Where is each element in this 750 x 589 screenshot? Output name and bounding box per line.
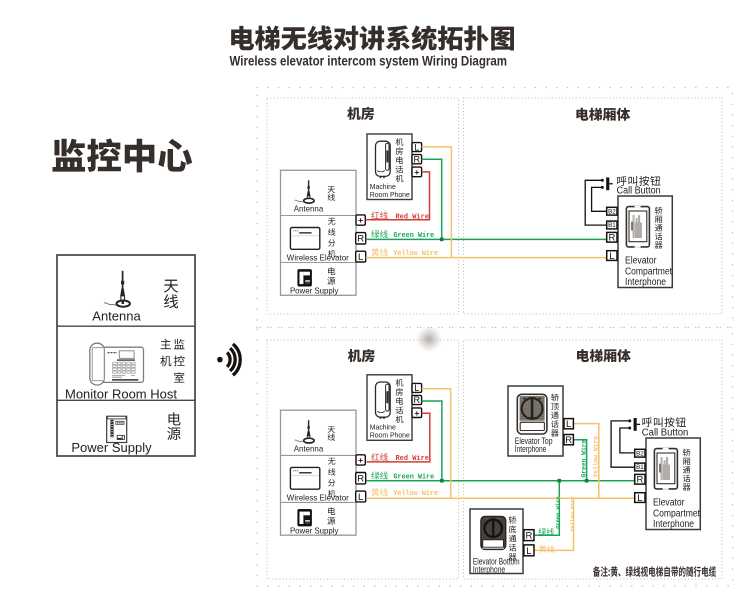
svg-text:L: L: [609, 251, 614, 262]
svg-text:L: L: [637, 493, 642, 504]
svg-text:Red Wire: Red Wire: [396, 455, 430, 463]
svg-text:+: +: [414, 408, 419, 418]
svg-text:+: +: [414, 167, 419, 177]
svg-text:Elevator: Elevator: [653, 498, 685, 509]
svg-text:Interphone: Interphone: [653, 519, 694, 530]
svg-text:Green Wire: Green Wire: [556, 496, 562, 528]
svg-text:Antenna: Antenna: [294, 443, 324, 453]
svg-text:B1: B1: [636, 464, 644, 471]
svg-text:Antenna: Antenna: [294, 204, 324, 214]
svg-text:Green Wire: Green Wire: [580, 439, 587, 477]
svg-text:Power Supply: Power Supply: [290, 525, 339, 535]
svg-text:Elevator: Elevator: [625, 256, 657, 267]
svg-text:L: L: [566, 419, 571, 430]
svg-text:Wireless Elevator: Wireless Elevator: [287, 253, 349, 263]
svg-text:+: +: [358, 455, 363, 465]
svg-text:Interphone: Interphone: [515, 443, 547, 454]
svg-text:Room Phone: Room Phone: [370, 431, 410, 440]
svg-text:Antenna: Antenna: [92, 309, 141, 324]
svg-text:L: L: [414, 142, 419, 152]
svg-text:L: L: [358, 252, 363, 263]
svg-text:Compartmet: Compartmet: [625, 266, 672, 277]
svg-text:R: R: [608, 233, 615, 244]
svg-text:Power Supply: Power Supply: [290, 286, 339, 296]
svg-text:Yellow Wire: Yellow Wire: [393, 250, 438, 258]
svg-text:R: R: [414, 154, 421, 164]
svg-text:Wireless elevator intercom sys: Wireless elevator intercom system Wiring…: [230, 54, 508, 69]
svg-text:B2: B2: [608, 208, 616, 215]
svg-text:Yellow Wire: Yellow Wire: [593, 436, 600, 478]
svg-text:Red Wire: Red Wire: [396, 213, 430, 221]
svg-text:R: R: [565, 435, 572, 446]
svg-text:B2: B2: [636, 450, 644, 457]
svg-text:Green Wire: Green Wire: [393, 473, 434, 481]
svg-text:L: L: [358, 492, 363, 503]
svg-text:Yellow Wire: Yellow Wire: [570, 496, 576, 532]
svg-text:Room Phone: Room Phone: [370, 190, 410, 199]
svg-text:Call Button: Call Button: [617, 186, 661, 197]
svg-text:R: R: [636, 475, 643, 486]
svg-text:Yellow Wire: Yellow Wire: [393, 490, 438, 498]
svg-text:R: R: [357, 234, 364, 245]
svg-text:Interphone: Interphone: [625, 277, 666, 288]
svg-text:L: L: [526, 546, 531, 557]
svg-text:R: R: [357, 474, 364, 485]
svg-text:+: +: [358, 215, 363, 225]
svg-text:B1: B1: [608, 222, 616, 229]
svg-text:Green Wire: Green Wire: [393, 232, 434, 240]
svg-text:Monitor Room Host: Monitor Room Host: [65, 387, 177, 402]
svg-text:Call Button: Call Button: [642, 427, 689, 438]
svg-text:Wireless Elevator: Wireless Elevator: [287, 493, 349, 503]
svg-text:Compartmet: Compartmet: [653, 508, 700, 519]
svg-text:R: R: [414, 395, 421, 405]
svg-text:R: R: [525, 531, 532, 542]
svg-text:Interphone: Interphone: [473, 563, 505, 574]
svg-text:L: L: [414, 383, 419, 393]
svg-text:Power Supply: Power Supply: [71, 440, 152, 455]
